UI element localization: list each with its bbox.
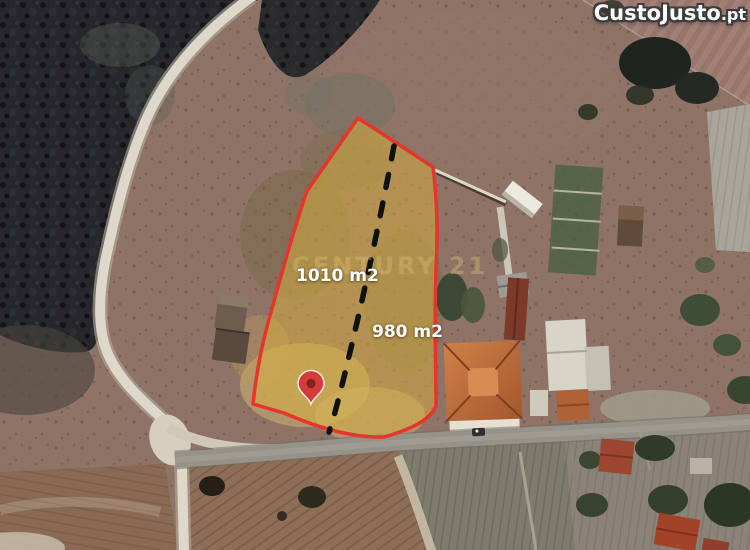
- small-farm-building: [617, 205, 644, 246]
- red-roof-house: [598, 438, 634, 474]
- tree: [199, 476, 225, 496]
- listing-photo-satellite-map: CENTURY 21 1010 m2 980 m2 CustoJusto.pt: [0, 0, 750, 550]
- orange-roof-house-small: [556, 389, 590, 421]
- area-label-section-1: 1010 m2: [296, 268, 379, 285]
- area-label-section-2: 980 m2: [372, 324, 443, 341]
- custojusto-logo: CustoJusto.pt: [594, 3, 746, 24]
- dark-red-roof-building: [504, 277, 529, 340]
- custojusto-logo-tld: .pt: [721, 5, 746, 24]
- white-shed: [530, 390, 548, 416]
- vegetable-gardens: [548, 165, 605, 276]
- car: [472, 428, 485, 437]
- white-building: [690, 458, 712, 474]
- orange-roof-house-large: [444, 341, 523, 433]
- custojusto-logo-name: CustoJusto: [594, 1, 721, 25]
